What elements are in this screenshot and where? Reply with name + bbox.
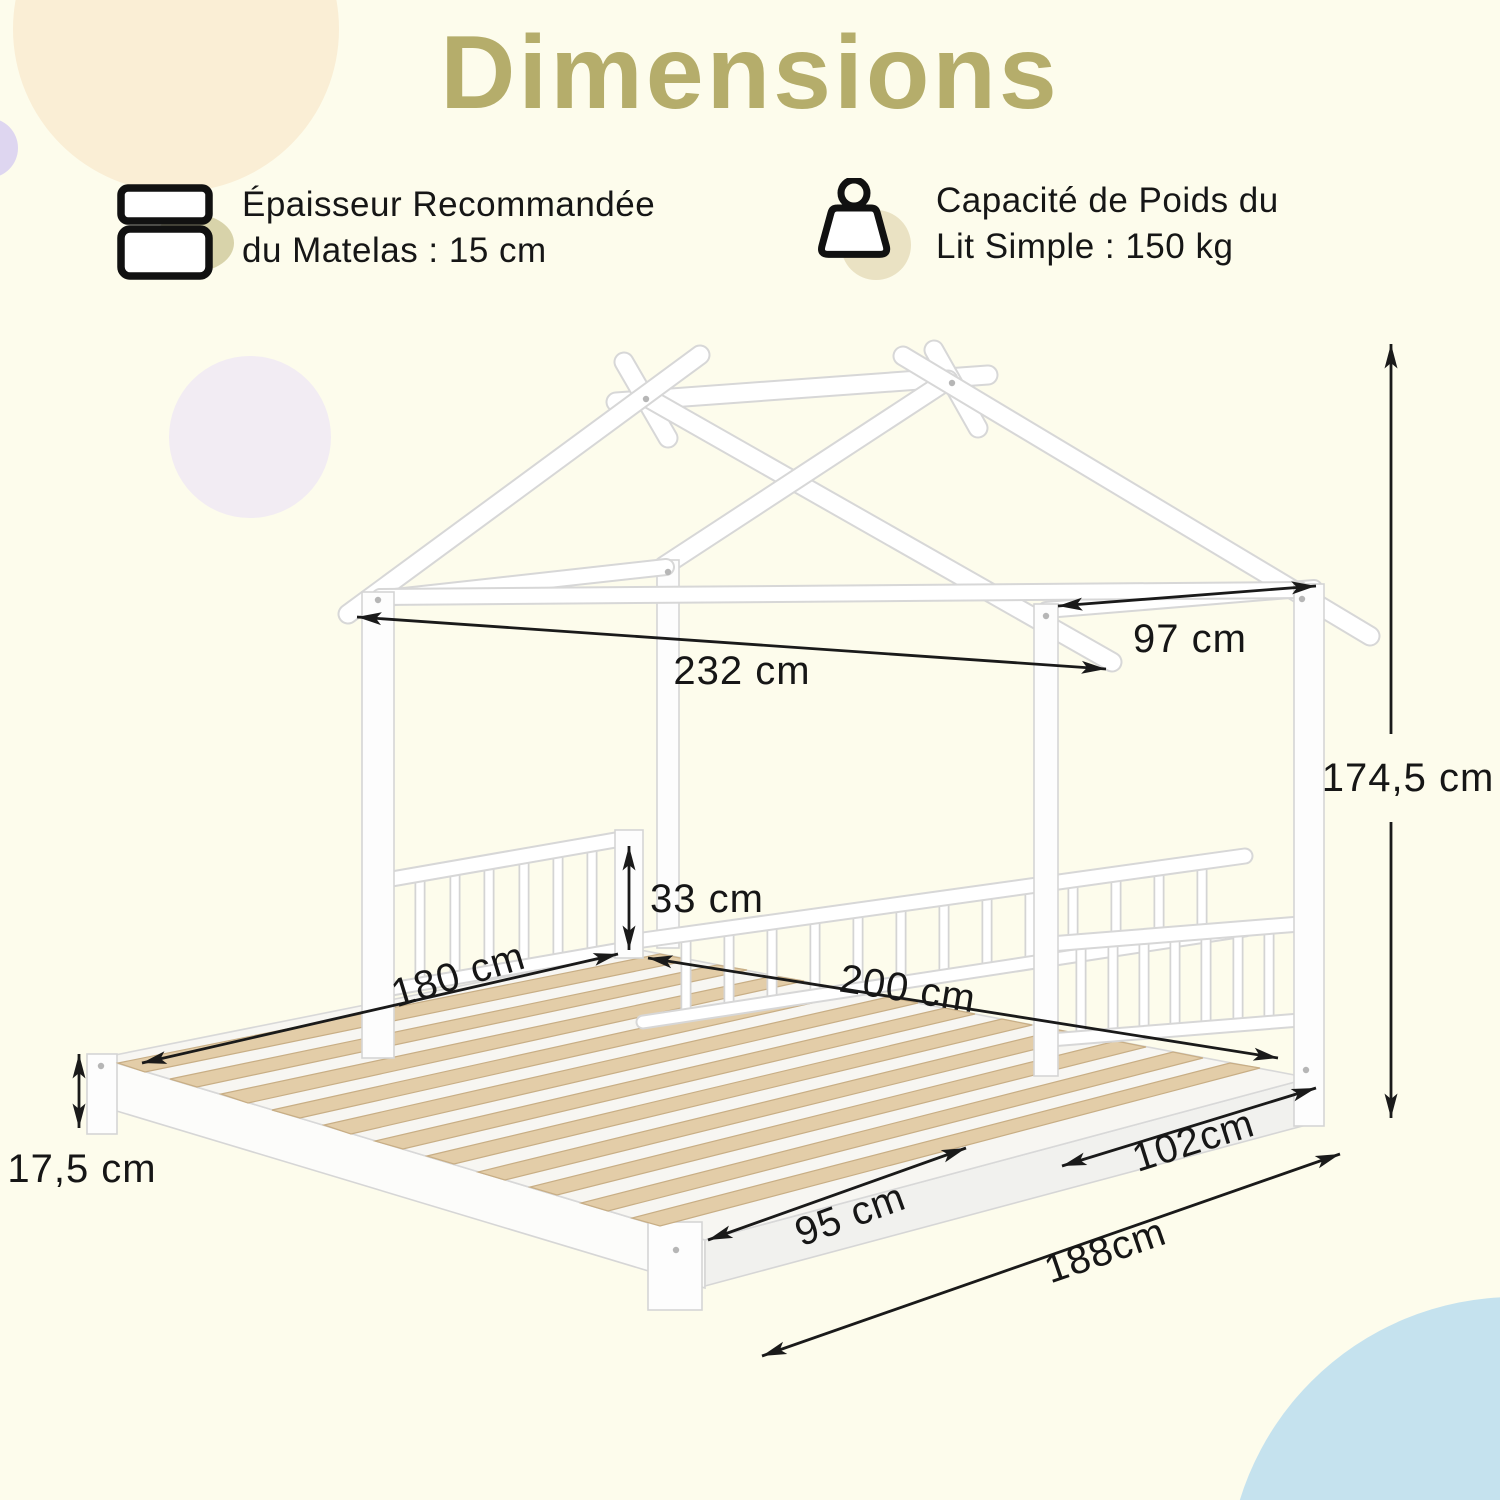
bed-eave-beams bbox=[380, 567, 1314, 610]
dimensions-infographic: 232 cm 97 cm 174,5 cm 33 cm 180 cm 2 bbox=[0, 0, 1500, 1500]
mattress-info-text: Épaisseur Recommandée du Matelas : 15 cm bbox=[242, 182, 655, 273]
dim-label-roof-span: 232 cm bbox=[673, 649, 810, 693]
bed-foot-middle bbox=[648, 1222, 702, 1310]
dim-label-frame-length: 188cm bbox=[1039, 1210, 1172, 1292]
bed-roof bbox=[348, 350, 1370, 662]
bed-post-back-right bbox=[1034, 604, 1058, 1076]
dim-label-platform-height: 17,5 cm bbox=[7, 1147, 156, 1191]
page-title: Dimensions bbox=[0, 14, 1500, 133]
weight-info: Capacité de Poids du Lit Simple : 150 kg bbox=[812, 178, 1279, 270]
bed-post-front-right bbox=[1294, 584, 1324, 1126]
weight-info-line1: Capacité de Poids du bbox=[936, 178, 1279, 224]
decor-circle-blue bbox=[1227, 1297, 1500, 1500]
mattress-icon bbox=[116, 182, 216, 282]
weight-info-line2: Lit Simple : 150 kg bbox=[936, 224, 1279, 270]
weight-info-text: Capacité de Poids du Lit Simple : 150 kg bbox=[936, 178, 1279, 269]
mattress-info-line1: Épaisseur Recommandée bbox=[242, 182, 655, 228]
bed-guardrail-end bbox=[1050, 924, 1300, 1040]
dim-label-roof-depth: 97 cm bbox=[1133, 617, 1247, 661]
dim-label-total-height: 174,5 cm bbox=[1322, 756, 1495, 800]
dimension-roof-span: 232 cm bbox=[357, 617, 1106, 693]
bed-post-front-left bbox=[362, 592, 394, 1058]
weight-icon bbox=[812, 178, 896, 270]
mattress-info: Épaisseur Recommandée du Matelas : 15 cm bbox=[116, 182, 655, 282]
mattress-info-line2: du Matelas : 15 cm bbox=[242, 228, 655, 274]
decor-circle-pink bbox=[169, 356, 331, 518]
dimension-total-height: 174,5 cm bbox=[1322, 344, 1495, 1118]
dim-label-guardrail-height: 33 cm bbox=[650, 877, 764, 921]
